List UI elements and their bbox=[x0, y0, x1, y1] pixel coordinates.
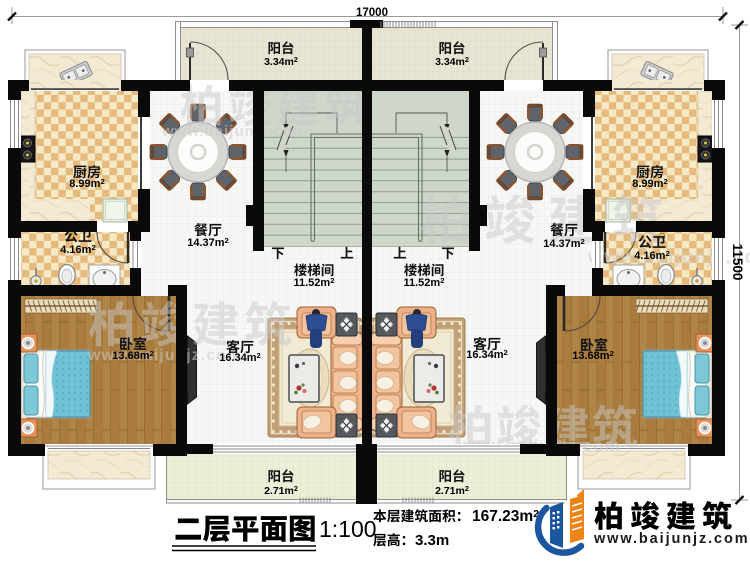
svg-text:17000: 17000 bbox=[356, 7, 388, 19]
svg-text:3.34m2: 3.34m2 bbox=[435, 55, 469, 68]
svg-text:11500: 11500 bbox=[730, 244, 745, 281]
svg-text:2.71m2: 2.71m2 bbox=[435, 484, 469, 497]
svg-text:11.52m2: 11.52m2 bbox=[294, 276, 335, 289]
svg-text:14.37m2: 14.37m2 bbox=[543, 237, 585, 250]
svg-text:11.52m2: 11.52m2 bbox=[404, 276, 445, 289]
svg-text:16.34m2: 16.34m2 bbox=[219, 351, 261, 364]
svg-text:www.baijunjz.com: www.baijunjz.com bbox=[161, 123, 307, 140]
svg-text:16.34m2: 16.34m2 bbox=[466, 348, 508, 361]
svg-text:13.68m2: 13.68m2 bbox=[572, 349, 614, 362]
svg-text:3.34m2: 3.34m2 bbox=[264, 55, 298, 68]
svg-text:1:100: 1:100 bbox=[319, 516, 377, 542]
svg-text:14.37m2: 14.37m2 bbox=[187, 236, 229, 249]
svg-text:2.71m2: 2.71m2 bbox=[264, 484, 298, 497]
svg-text:8.99m2: 8.99m2 bbox=[69, 177, 104, 190]
svg-text:8.99m2: 8.99m2 bbox=[632, 177, 667, 190]
svg-text:www.baijunjz.com: www.baijunjz.com bbox=[593, 531, 750, 547]
svg-text:13.68m2: 13.68m2 bbox=[112, 349, 154, 362]
svg-text:3.3m: 3.3m bbox=[415, 532, 449, 549]
svg-text:4.16m2: 4.16m2 bbox=[634, 249, 669, 262]
svg-text:4.16m2: 4.16m2 bbox=[60, 243, 95, 256]
svg-text:167.23m2: 167.23m2 bbox=[472, 508, 539, 525]
